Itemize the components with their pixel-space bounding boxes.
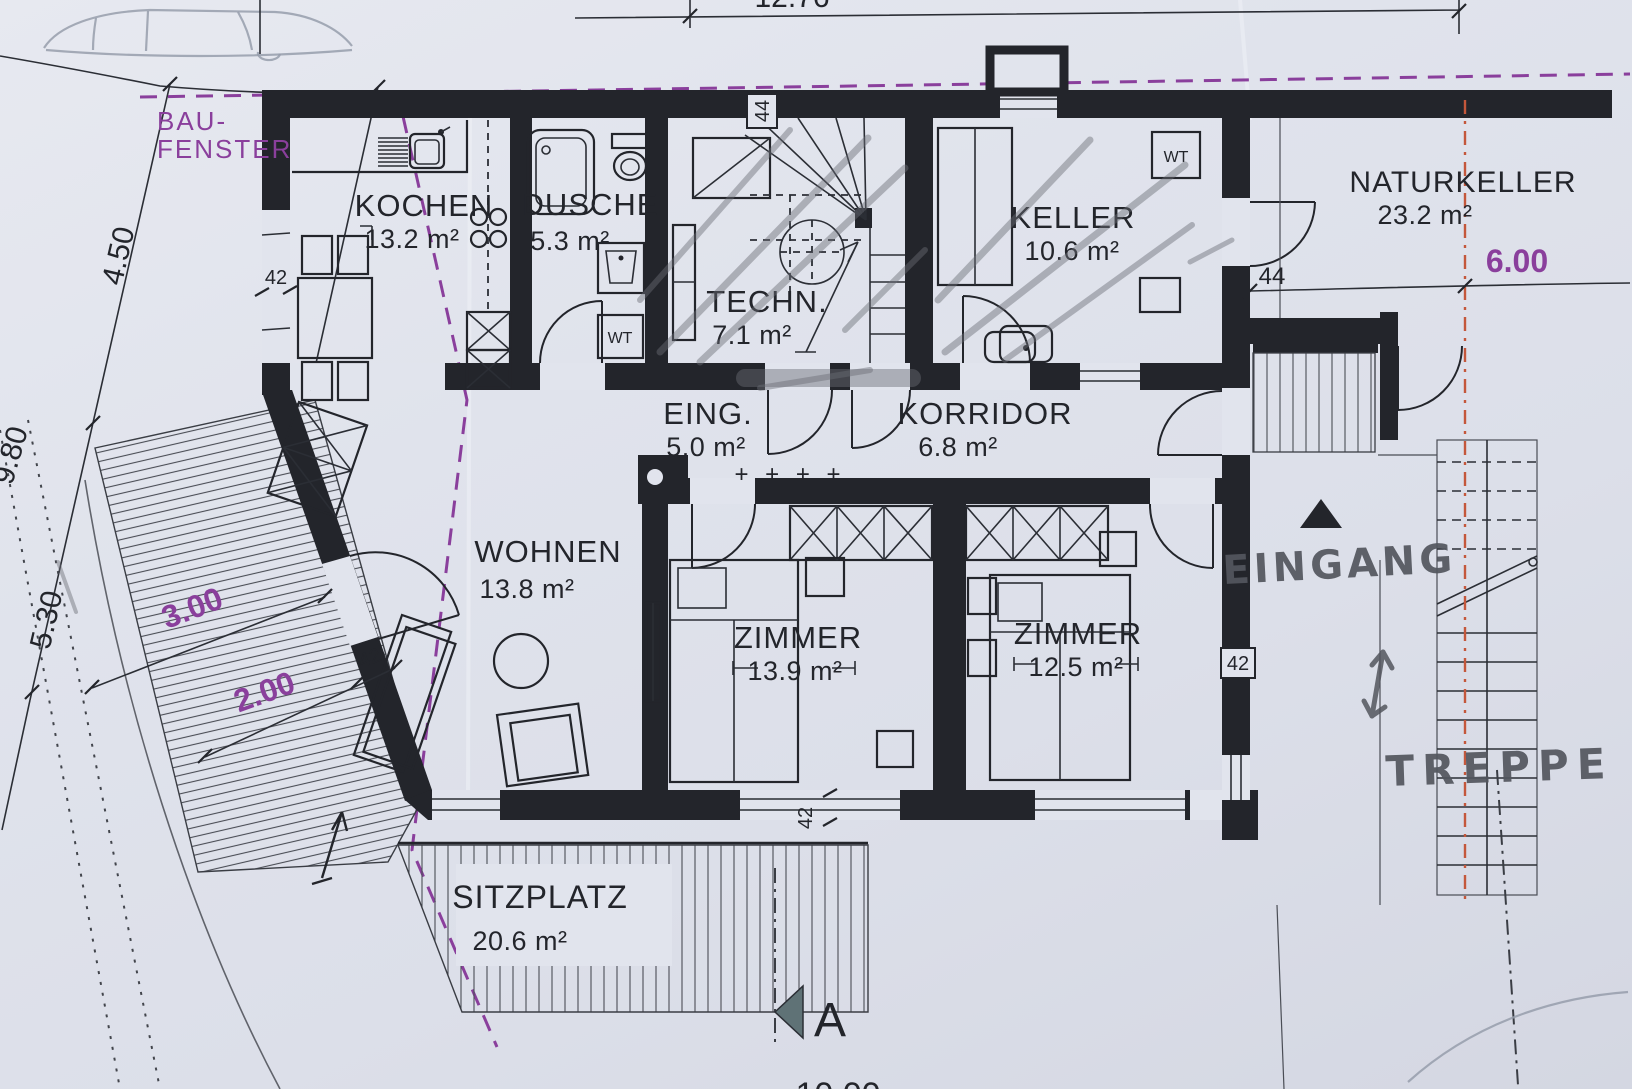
room-label-korridor: KORRIDOR [897, 396, 1072, 431]
dim-44-top-box: 44 [747, 94, 777, 128]
room-area-zimmer1: 13.9 m² [747, 656, 842, 686]
room-area-sitzplatz: 20.6 m² [472, 926, 567, 956]
room-area-naturkeller: 23.2 m² [1377, 200, 1472, 230]
room-area-wohnen: 13.8 m² [479, 574, 574, 604]
entrance-arrow-icon [1300, 499, 1342, 528]
dim-980: 9.80 [0, 423, 35, 488]
car-outline [44, 10, 352, 60]
room-label-eing: EING. [663, 396, 752, 431]
wt-label-dusche: WT [608, 330, 633, 347]
room-label-dusche: DUSCHE [522, 187, 659, 222]
room-label-naturkeller: NATURKELLER [1349, 166, 1576, 199]
room-area-dusche: 5.3 m² [530, 226, 610, 256]
chimney [990, 50, 1064, 92]
armchair [497, 704, 588, 787]
room-label-sitzplatz: SITZPLATZ [452, 879, 628, 915]
room-label-wohnen: WOHNEN [474, 534, 621, 569]
bau-fenster-line1: BAU- [157, 106, 227, 136]
room-label-zimmer2: ZIMMER [1014, 616, 1142, 651]
handwritten-treppe: TREPPE [1385, 739, 1615, 796]
door-sill-marks: + + + + [734, 461, 845, 488]
dim-bottom-partial: 10.00 [795, 1076, 880, 1089]
dim-44-naturkeller: 44 [1259, 263, 1286, 290]
room-area-kochen: 13.2 m² [364, 224, 459, 254]
dim-42-bottom: 42 [795, 807, 817, 829]
door-stairs-eing [768, 390, 832, 454]
section-letter: A [814, 994, 846, 1047]
sitzplatz-terrace [398, 843, 868, 1012]
toilet-icon [612, 134, 648, 180]
dim-450: 4.50 [96, 224, 141, 288]
floor-plan-svg: WT WT [0, 0, 1632, 1089]
stove-icon [378, 138, 408, 166]
wt-box-dusche: WT [598, 315, 643, 358]
dim-44-top: 44 [752, 100, 774, 122]
handwritten-eingang: EINGANG [1221, 536, 1457, 594]
door-house-entry [1398, 346, 1462, 410]
treppe-double-arrow [1364, 652, 1392, 716]
room-area-korridor: 6.8 m² [918, 432, 998, 462]
dim-600: 6.00 [1486, 243, 1548, 279]
exterior-right [1253, 100, 1628, 1089]
room-label-zimmer1: ZIMMER [734, 620, 862, 655]
tall-cabinet [467, 120, 510, 388]
dim-530: 5.30 [24, 588, 69, 652]
sink-icon [410, 127, 450, 168]
door-zimmer1 [692, 504, 755, 568]
room-label-kochen: KOCHEN [355, 188, 494, 223]
room-area-eing: 5.0 m² [666, 432, 746, 462]
exterior-steps [1253, 353, 1375, 452]
dim-42-right-box: 42 [1221, 648, 1255, 678]
door-naturkeller [1250, 202, 1315, 266]
dim-top-partial: 12.76 [754, 0, 829, 14]
street-edge-line [0, 56, 415, 94]
section-line-right [1497, 770, 1518, 1085]
coffee-table [494, 634, 548, 688]
door-entrance [1158, 391, 1222, 455]
kitchen-fixtures [292, 120, 510, 400]
door-zimmer2 [1150, 504, 1213, 568]
dim-42-right: 42 [1227, 653, 1249, 675]
floor-plan-scan: WT WT [0, 0, 1632, 1089]
room-area-zimmer2: 12.5 m² [1028, 652, 1123, 682]
treppe-stair [1437, 440, 1537, 895]
bau-fenster-line2: FENSTER [157, 134, 292, 164]
dim-42-left: 42 [265, 267, 287, 289]
door-dusche [540, 301, 602, 363]
